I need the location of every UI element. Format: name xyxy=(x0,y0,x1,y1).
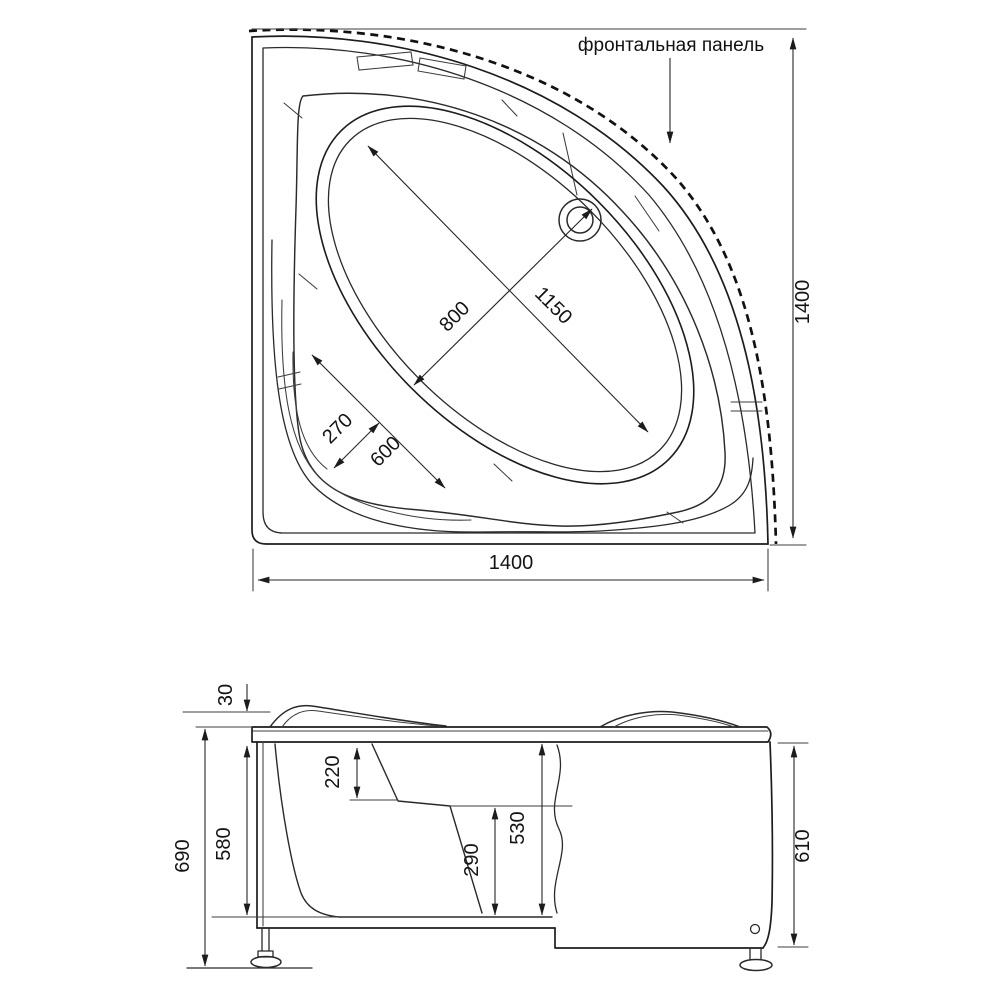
headrest-right xyxy=(600,712,740,727)
seat-contour-1 xyxy=(272,240,753,532)
dim-seat-width-label: 270 xyxy=(318,409,357,448)
panel-hole xyxy=(751,925,760,934)
dim-rim-to-seat-label: 220 xyxy=(322,755,344,788)
dim-seat-to-bottom-label: 290 xyxy=(461,843,483,876)
dim-inner-depth: 530 xyxy=(507,744,542,915)
dim-overall-width: 1400 xyxy=(253,549,768,591)
dim-shell-height: 580 xyxy=(213,746,247,915)
interior-profile xyxy=(372,744,482,913)
panel-skirt xyxy=(555,928,763,948)
legs xyxy=(187,928,772,971)
drawing-canvas: 800 1150 270 600 1400 xyxy=(0,0,1000,1000)
dim-overall-depth-label: 1400 xyxy=(792,280,814,325)
dim-seat-depth-label: 600 xyxy=(366,432,405,471)
side-view: 30 690 580 220 290 xyxy=(172,684,814,971)
panel-right-edge xyxy=(763,742,772,948)
tub-outline xyxy=(249,30,776,544)
top-view-dimensions: 800 1150 270 600 1400 xyxy=(252,29,814,591)
rim-slab xyxy=(252,727,771,742)
dim-panel-height: 610 xyxy=(792,746,814,945)
dim-overall-width-label: 1400 xyxy=(489,552,534,574)
front-panel-dashed-line xyxy=(249,30,776,544)
panel-callout: фронтальная панель xyxy=(578,35,764,143)
dim-inner-depth-label: 530 xyxy=(507,811,529,844)
rim-fitting-1 xyxy=(357,52,413,70)
dim-overall-height: 690 xyxy=(172,729,205,966)
rim-inner-edge xyxy=(294,93,725,526)
headrest-right-inner xyxy=(614,714,734,727)
seat-contour-2 xyxy=(282,300,471,520)
panel-callout-label: фронтальная панель xyxy=(578,35,764,56)
dim-panel-height-label: 610 xyxy=(792,829,814,862)
break-line xyxy=(554,745,562,913)
dim-overall-height-label: 690 xyxy=(172,839,194,872)
dim-basin-length: 1150 xyxy=(368,146,648,432)
dim-basin-length-label: 1150 xyxy=(530,283,576,329)
top-view: 800 1150 270 600 1400 xyxy=(248,29,814,591)
dim-rim-to-seat: 220 xyxy=(322,748,357,798)
dim-shell-height-label: 580 xyxy=(213,827,235,860)
dim-rim-lip-label: 30 xyxy=(215,684,237,706)
bathtub-technical-drawing: 800 1150 270 600 1400 xyxy=(0,0,1000,1000)
left-foot xyxy=(251,957,281,968)
right-foot xyxy=(740,960,772,971)
seat-contour-3 xyxy=(293,352,327,469)
dim-rim-lip: 30 xyxy=(215,684,247,711)
dim-basin-width: 800 xyxy=(414,209,592,385)
